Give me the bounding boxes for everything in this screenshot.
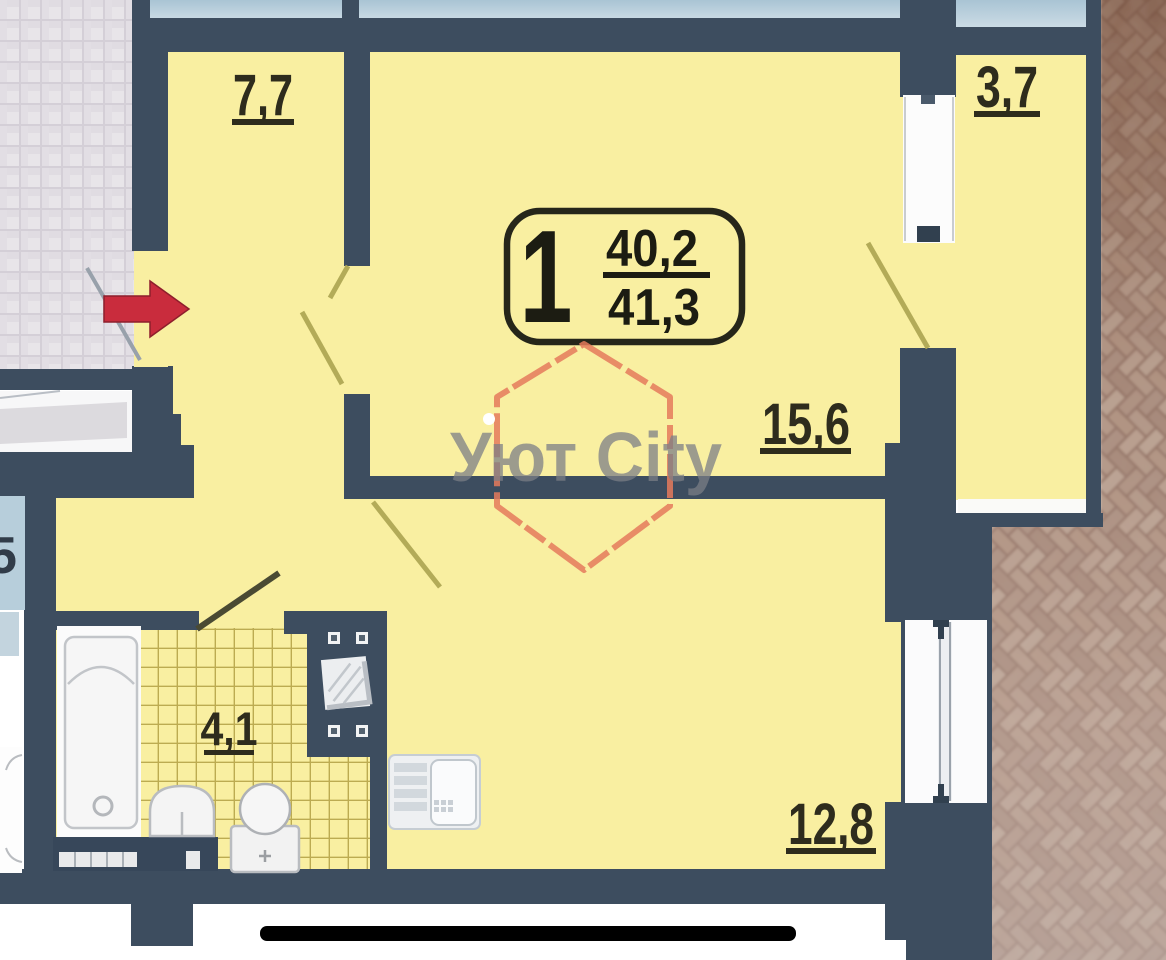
svg-text:3,7: 3,7 xyxy=(976,55,1038,120)
svg-text:12,8: 12,8 xyxy=(788,792,874,857)
svg-text:Уют City: Уют City xyxy=(450,418,722,496)
svg-text:5: 5 xyxy=(0,527,17,585)
svg-text:40,2: 40,2 xyxy=(606,220,698,278)
svg-text:4,1: 4,1 xyxy=(201,702,258,755)
svg-text:41,3: 41,3 xyxy=(608,279,700,337)
svg-text:15,6: 15,6 xyxy=(762,392,850,457)
svg-text:7,7: 7,7 xyxy=(233,63,293,128)
svg-text:1: 1 xyxy=(520,204,573,351)
